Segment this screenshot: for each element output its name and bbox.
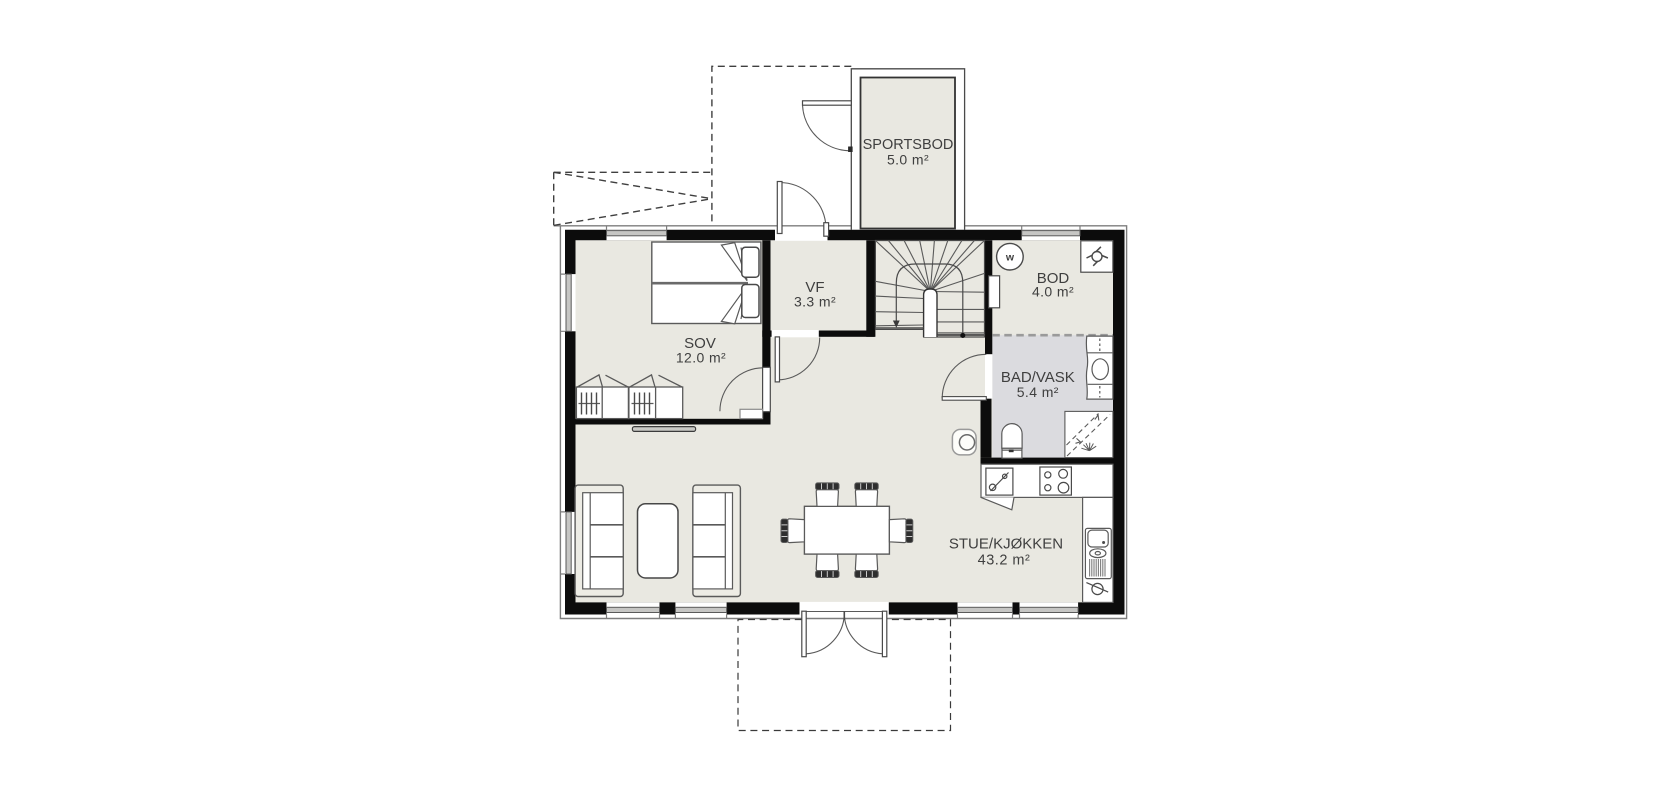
svg-text:43.2 m²: 43.2 m² xyxy=(978,553,1031,569)
svg-text:4.0 m²: 4.0 m² xyxy=(1032,284,1074,300)
svg-text:STUE/KJØKKEN: STUE/KJØKKEN xyxy=(949,536,1063,553)
svg-text:SPORTSBOD: SPORTSBOD xyxy=(863,137,954,153)
svg-text:3.3 m²: 3.3 m² xyxy=(794,294,836,310)
svg-text:5.4 m²: 5.4 m² xyxy=(1017,384,1059,400)
svg-text:5.0 m²: 5.0 m² xyxy=(887,152,929,168)
svg-text:w: w xyxy=(1005,252,1015,264)
svg-text:12.0 m²: 12.0 m² xyxy=(676,350,726,366)
